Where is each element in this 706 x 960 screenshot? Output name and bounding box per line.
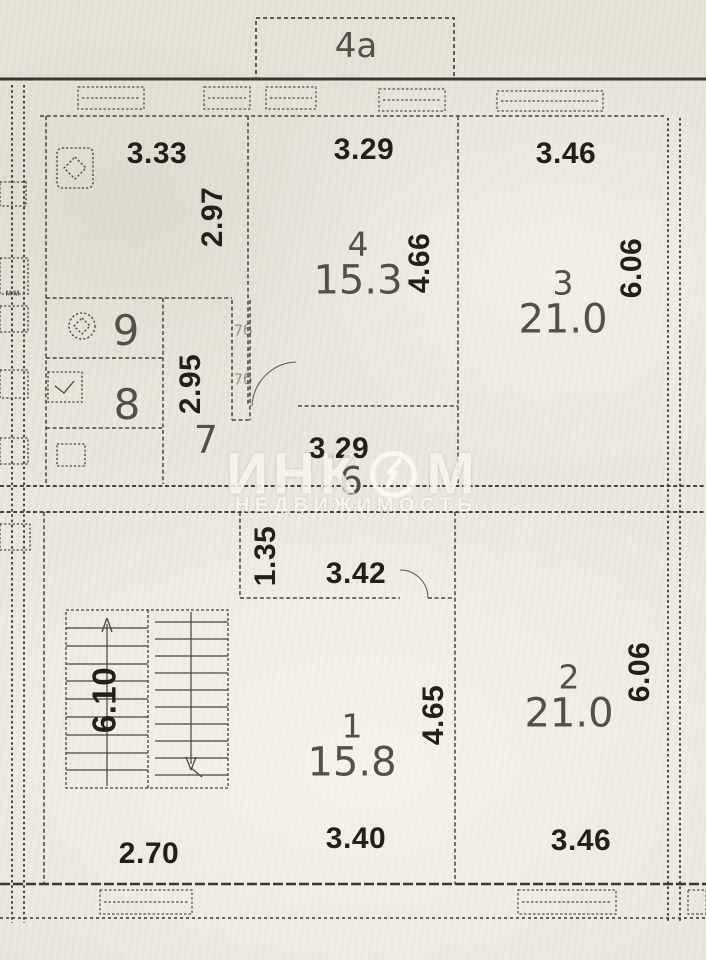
- dim-stairwell-depth: 6.10: [88, 667, 121, 733]
- room8-number: 8: [114, 384, 141, 426]
- left-margin-mark: мм: [5, 289, 20, 298]
- room1-tag: 1 15.8: [307, 710, 396, 783]
- dim-kitchen-width: 3.33: [127, 139, 187, 169]
- dim-entry-width: 3.42: [326, 559, 386, 589]
- room7-number: 7: [194, 421, 218, 459]
- dim-bottom-left-width: 2.70: [119, 839, 179, 869]
- bath-fixture-icon: [48, 372, 82, 402]
- dim-room2-depth: 6.06: [625, 642, 655, 702]
- stove-icon: [57, 148, 93, 188]
- room9-number: 9: [113, 310, 140, 352]
- watermark-subtitle: НЕДВИЖИМОСТЬ: [235, 495, 477, 518]
- lower-windows: [100, 890, 706, 914]
- room2-number: 2: [524, 661, 613, 694]
- room3-number: 3: [518, 267, 607, 300]
- door-arc-room4: [252, 362, 296, 406]
- dim-room1-depth: 4.65: [419, 685, 449, 745]
- room1-number: 1: [307, 710, 396, 743]
- sink-mark-icon: [74, 318, 90, 334]
- floorplan-page: 4а 3.33 2.97 3.29 4.66 3.46 6.06 2.95 3.…: [0, 0, 706, 960]
- door-arc-room1: [400, 570, 428, 598]
- closet-label-bottom: 7б: [234, 373, 253, 388]
- upper-windows: [78, 87, 603, 111]
- room2-tag: 2 21.0: [524, 661, 613, 734]
- room4-area: 15.3: [313, 261, 402, 301]
- dim-room2-width: 3.46: [551, 826, 611, 856]
- fixtures: [0, 148, 95, 550]
- closet-label-top: 7б: [234, 324, 253, 339]
- stove-burner-icon: [64, 157, 86, 179]
- room3-tag: 3 21.0: [518, 267, 607, 340]
- sink-icon: [69, 313, 95, 339]
- room4-number: 4: [313, 228, 402, 261]
- cabinet-icon: [57, 444, 85, 466]
- room1-area: 15.8: [307, 743, 396, 783]
- dim-room1-width: 3.40: [326, 824, 386, 854]
- dim-kitchen-depth: 2.97: [198, 187, 228, 247]
- dim-room3-width: 3.46: [536, 139, 596, 169]
- watermark-logo-icon: [367, 448, 419, 500]
- dim-room4-depth: 4.66: [405, 233, 435, 293]
- balcony-label: 4а: [335, 29, 377, 63]
- room3-area: 21.0: [518, 300, 607, 340]
- dim-room4-width: 3.29: [334, 135, 394, 165]
- dim-room3-depth: 6.06: [617, 238, 647, 298]
- dim-entry-depth: 1.35: [251, 526, 281, 586]
- room4-tag: 4 15.3: [313, 228, 402, 301]
- dim-inner-depth: 2.95: [176, 354, 206, 414]
- room2-area: 21.0: [524, 694, 613, 734]
